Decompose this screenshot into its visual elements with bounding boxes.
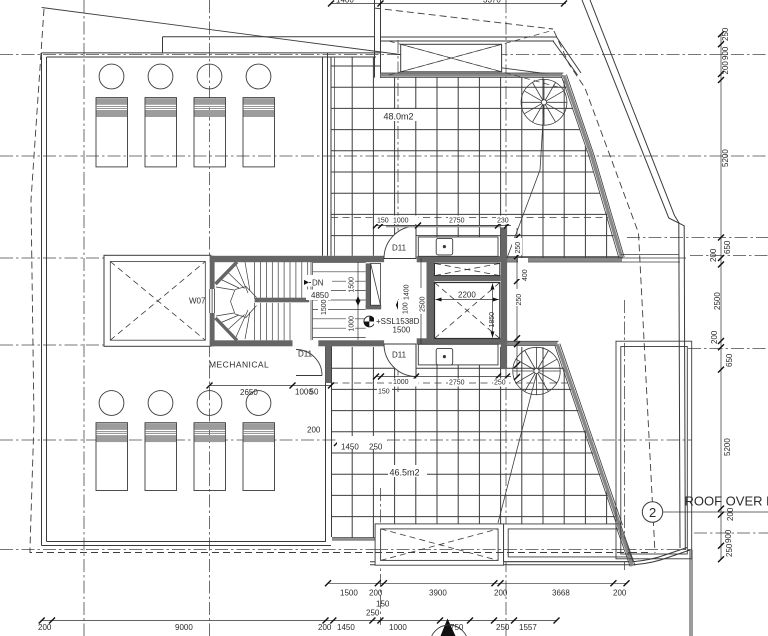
svg-text:900: 900 <box>724 529 733 543</box>
svg-text:1557: 1557 <box>519 623 537 632</box>
svg-text:D11: D11 <box>392 244 407 253</box>
svg-text:200: 200 <box>726 507 735 521</box>
svg-text:3370: 3370 <box>483 0 501 5</box>
svg-text:200: 200 <box>721 61 730 75</box>
svg-text:4850: 4850 <box>311 291 329 300</box>
svg-text:650: 650 <box>723 240 732 254</box>
svg-text:400: 400 <box>522 269 529 281</box>
svg-text:1500: 1500 <box>340 589 358 598</box>
svg-text:3668: 3668 <box>552 589 570 598</box>
svg-text:46.5m2: 46.5m2 <box>390 468 420 478</box>
svg-text:1000: 1000 <box>349 316 356 332</box>
svg-text:1400: 1400 <box>404 284 411 300</box>
svg-text:900: 900 <box>721 46 730 60</box>
svg-text:1500: 1500 <box>321 299 328 315</box>
svg-text:200: 200 <box>709 248 718 262</box>
svg-text:5200: 5200 <box>721 149 730 167</box>
svg-text:2: 2 <box>649 505 656 520</box>
svg-text:150: 150 <box>377 218 389 225</box>
svg-text:230: 230 <box>497 218 509 225</box>
svg-text:250: 250 <box>721 27 730 41</box>
svg-text:1000: 1000 <box>393 379 409 386</box>
svg-text:150: 150 <box>378 389 390 396</box>
svg-text:200: 200 <box>710 330 719 344</box>
svg-text:200: 200 <box>38 623 52 632</box>
svg-text:2750: 2750 <box>449 218 465 225</box>
svg-text:1450: 1450 <box>337 623 355 632</box>
svg-text:100: 100 <box>403 302 410 314</box>
svg-text:200: 200 <box>369 589 383 598</box>
svg-text:D11: D11 <box>392 351 407 360</box>
svg-text:650: 650 <box>725 353 734 367</box>
svg-text:200: 200 <box>494 589 508 598</box>
svg-text:200: 200 <box>613 589 627 598</box>
svg-text:2650: 2650 <box>240 388 258 397</box>
svg-text:1450: 1450 <box>341 443 359 452</box>
svg-text:1500: 1500 <box>349 277 356 293</box>
svg-text:1850: 1850 <box>489 312 496 328</box>
svg-text:150: 150 <box>376 600 390 609</box>
svg-text:D11: D11 <box>298 350 313 359</box>
svg-text:ROOF OVER POOL: ROOF OVER POOL <box>685 494 768 509</box>
svg-text:50: 50 <box>310 388 319 397</box>
svg-text:W07: W07 <box>189 297 206 306</box>
svg-text:250: 250 <box>366 609 380 618</box>
svg-text:200: 200 <box>307 426 321 435</box>
svg-text:5200: 5200 <box>723 438 732 456</box>
svg-text:250: 250 <box>516 294 523 306</box>
svg-text:1500: 1500 <box>393 326 411 335</box>
svg-text:250: 250 <box>496 623 510 632</box>
svg-text:250: 250 <box>515 242 522 254</box>
svg-text:48.0m2: 48.0m2 <box>384 112 414 122</box>
svg-text:2750: 2750 <box>449 380 465 387</box>
svg-text:DN: DN <box>312 279 324 288</box>
svg-text:MECHANICAL: MECHANICAL <box>209 360 269 370</box>
svg-text:2500: 2500 <box>713 292 722 310</box>
svg-text:1000: 1000 <box>393 218 409 225</box>
svg-text:1400: 1400 <box>336 0 354 5</box>
svg-text:250: 250 <box>494 380 506 387</box>
svg-text:1000: 1000 <box>389 623 407 632</box>
svg-text:250: 250 <box>369 443 383 452</box>
svg-text:2500: 2500 <box>420 296 427 312</box>
svg-text:250: 250 <box>725 543 734 557</box>
svg-text:9000: 9000 <box>175 623 193 632</box>
svg-text:200: 200 <box>318 623 332 632</box>
svg-text:2200: 2200 <box>458 291 476 300</box>
svg-text:3900: 3900 <box>429 589 447 598</box>
